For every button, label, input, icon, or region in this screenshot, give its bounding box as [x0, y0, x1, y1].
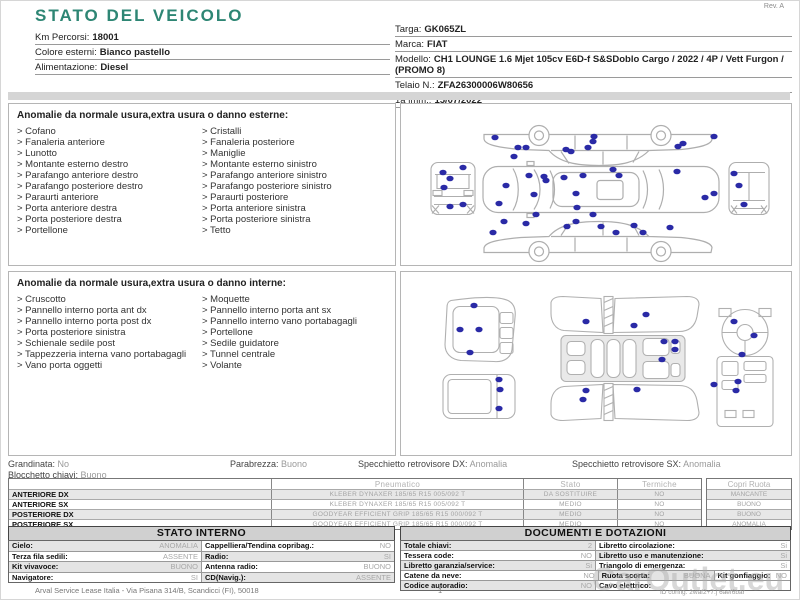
anomalies-internal-list: > Cruscotto> Pannello interno porta ant … [9, 294, 395, 371]
tyre-row: ANTERIORE DXKLEBER DYNAXER 185/65 R15 00… [9, 489, 701, 499]
table-body: Cielo:ANOMALIACappelliera/Tendina coprib… [8, 540, 395, 583]
vehicle-info-left: Km Percorsi:18001Colore esterni:Bianco p… [35, 30, 390, 75]
damage-dot [500, 219, 507, 225]
status-value: Buono [281, 459, 307, 469]
table-row: Tessera code:NOLibretto uso e manutenzio… [401, 550, 790, 560]
damage-dot [466, 350, 473, 356]
damage-dot [475, 327, 482, 333]
cell-label: Libretto uso e manutenzione: [599, 551, 704, 560]
kv-cell: Tessera code:NO [401, 551, 595, 560]
tyre-header-row: PneumaticoStatoTermiche [9, 479, 701, 489]
damage-dot [673, 169, 680, 175]
exterior-diagram-box [400, 103, 792, 266]
damage-dot [502, 183, 509, 189]
car-interior-diagram [401, 272, 791, 455]
kv-cell: Terza fila sedili:ASSENTE [9, 552, 201, 562]
cell-label: Radio: [205, 552, 228, 561]
table-row: Terza fila sedili:ASSENTERadio:SI [9, 551, 394, 562]
kv-cell: CD(Navig.):ASSENTE [201, 573, 394, 583]
tyre-thermal-cell: NO [617, 500, 701, 509]
kv-cell: Kit vivavoce:BUONO [9, 562, 201, 572]
anomaly-item: > Porta posteriore destra [17, 214, 202, 225]
anomaly-item: > Parafango anteriore sinistro [202, 170, 387, 181]
damage-dot [630, 223, 637, 229]
anomalies-external-title: Anomalie da normale usura,extra usura o … [17, 110, 387, 121]
anomaly-item: > Tunnel centrale [202, 349, 387, 360]
tyre-position-cell: ANTERIORE SX [9, 500, 271, 509]
field-label: Marca: [395, 39, 424, 50]
anomaly-item: > Porta posteriore sinistra [202, 214, 387, 225]
cell-value: Si [780, 541, 787, 550]
stato-interno-table: STATO INTERNOCielo:ANOMALIACappelliera/T… [8, 526, 395, 583]
damage-dot [582, 319, 589, 325]
damage-dot [491, 135, 498, 141]
anomaly-item: > Cristalli [202, 126, 387, 137]
cell-label: Tessera code: [404, 551, 454, 560]
damage-dot [495, 406, 502, 412]
cell-label: Cappelliera/Tendina copribag.: [205, 541, 314, 550]
page-number: 1 [438, 586, 442, 595]
cell-label: Libretto garanzia/service: [404, 561, 495, 570]
status-item: Grandinata: No [8, 459, 69, 469]
damage-dot [660, 339, 667, 345]
damage-dot [701, 195, 708, 201]
cell-value: BUONO [170, 562, 198, 571]
damage-dot [642, 312, 649, 318]
cabin-view-icon [551, 297, 699, 421]
field-label: Alimentazione: [35, 62, 97, 73]
damage-dot [572, 191, 579, 197]
status-item: Specchietto retrovisore SX: Anomalia [572, 459, 721, 469]
footer-text: Arval Service Lease Italia - Via Pisana … [35, 586, 259, 595]
damage-dot [440, 185, 447, 191]
info-row: Colore esterni:Bianco pastello [35, 45, 390, 60]
table-row: Totale chiavi:2Libretto circolazione:Si [401, 541, 790, 550]
anomaly-item: > Paraurti posteriore [202, 192, 387, 203]
field-value: GK065ZL [424, 24, 466, 35]
kv-cell: Cappelliera/Tendina copribag.:NO [201, 541, 394, 551]
damage-dot [439, 170, 446, 176]
tyre-table: PneumaticoStatoTermicheANTERIORE DXKLEBE… [8, 478, 702, 530]
tyre-state-cell: DA SOSTITUIRE [523, 490, 617, 499]
cell-value: SI [191, 573, 198, 582]
table-row: Cielo:ANOMALIACappelliera/Tendina coprib… [9, 541, 394, 551]
page-title: STATO DEL VEICOLO [35, 6, 243, 26]
field-value: Bianco pastello [100, 47, 170, 58]
cell-label: Totale chiavi: [404, 541, 451, 550]
cell-value: ANOMALIA [159, 541, 198, 550]
anomaly-item: > Schienale sedile post [17, 338, 202, 349]
anomaly-item: > Maniglie [202, 148, 387, 159]
field-label: Colore esterni: [35, 47, 97, 58]
anomaly-item: > Moquette [202, 294, 387, 305]
anomaly-item: > Tappezzeria interna vano portabagagli [17, 349, 202, 360]
anomaly-item: > Montante esterno sinistro [202, 159, 387, 170]
table-row: Navigatore:SICD(Navig.):ASSENTE [9, 572, 394, 583]
info-row: Alimentazione:Diesel [35, 60, 390, 75]
tyre-row: ANTERIORE SXKLEBER DYNAXER 185/65 R15 00… [9, 499, 701, 509]
anomalies-external-col-right: > Cristalli> Fanaleria posteriore> Manig… [202, 126, 387, 236]
cell-value: ASSENTE [163, 552, 198, 561]
tyre-corner-cell [9, 479, 271, 489]
plan-view-icon [483, 162, 719, 218]
status-label: Grandinata: [8, 459, 58, 469]
cell-label: Kit vivavoce: [12, 562, 58, 571]
anomaly-item: > Montante esterno destro [17, 159, 202, 170]
damage-dot [671, 347, 678, 353]
anomaly-item: > Volante [202, 360, 387, 371]
anomalies-external-box: Anomalie da normale usura,extra usura o … [8, 103, 396, 266]
damage-dot [573, 205, 580, 211]
kv-cell: Libretto uso e manutenzione:Si [595, 551, 790, 560]
status-value: Anomalia [683, 459, 721, 469]
anomalies-internal-box: Anomalie da normale usura,extra usura o … [8, 271, 396, 456]
cell-value: NO [380, 541, 391, 550]
damage-dot [730, 319, 737, 325]
damage-dot [734, 379, 741, 385]
kv-cell: Totale chiavi:2 [401, 541, 595, 550]
tyre-thermal-cell: NO [617, 490, 701, 499]
kv-cell: Navigatore:SI [9, 573, 201, 583]
damage-dot [560, 175, 567, 181]
damage-dot [710, 134, 717, 140]
section-divider [8, 92, 790, 100]
copri-value-cell: MANCANTE [707, 489, 791, 499]
id-code: ID config. 2waf2+7.j 6aef6bar [660, 589, 745, 596]
tyre-name-cell: KLEBER DYNAXER 185/65 R15 005/092 T [271, 490, 523, 499]
cell-label: CD(Navig.): [205, 573, 246, 582]
kv-cell: Codice autoradio:NO [401, 581, 595, 590]
damage-dot [567, 149, 574, 155]
cell-label: Libretto circolazione: [599, 541, 675, 550]
damage-dot [589, 139, 596, 145]
copri-header-cell: Copri Ruota [707, 479, 791, 489]
damage-dot [710, 191, 717, 197]
info-row: Marca:FIAT [395, 37, 792, 52]
damage-dot [510, 154, 517, 160]
damage-dot [522, 221, 529, 227]
cell-label: Antenna radio: [205, 562, 258, 571]
damage-dot [579, 397, 586, 403]
copri-value-cell: BUONO [707, 499, 791, 509]
field-label: Km Percorsi: [35, 32, 89, 43]
damage-dot [738, 352, 745, 358]
info-row: Km Percorsi:18001 [35, 30, 390, 45]
anomalies-external-col-left: > Cofano> Fanaleria anteriore> Lunotto> … [17, 126, 202, 236]
anomaly-item: > Vano porta oggetti [17, 360, 202, 371]
kv-cell: Catene da neve:NO [401, 571, 598, 580]
damage-dot [590, 134, 597, 140]
damage-dot [456, 327, 463, 333]
field-label: Targa: [395, 24, 421, 35]
damage-dot [522, 145, 529, 151]
damage-dot [679, 141, 686, 147]
field-label: Telaio N.: [395, 80, 435, 91]
anomaly-item: > Parafango posteriore sinistro [202, 181, 387, 192]
cell-value: Si [780, 551, 787, 560]
damage-dot [639, 230, 646, 236]
anomaly-item: > Parafango posteriore destro [17, 181, 202, 192]
tyre-header-cell: Stato [523, 479, 617, 489]
damage-dot [582, 388, 589, 394]
kv-cell: Libretto circolazione:Si [595, 541, 790, 550]
status-label: Specchietto retrovisore DX: [358, 459, 470, 469]
tyre-position-cell: POSTERIORE DX [9, 510, 271, 519]
damage-dot [572, 219, 579, 225]
cell-label: Codice autoradio: [404, 581, 468, 590]
damage-dot [470, 303, 477, 309]
kv-cell: Libretto garanzia/service:Si [401, 561, 595, 570]
damage-dot [750, 333, 757, 339]
cell-value: NO [581, 551, 592, 560]
tyre-state-cell: MEDIO [523, 500, 617, 509]
cell-value: NO [581, 581, 592, 590]
anomalies-external-list: > Cofano> Fanaleria anteriore> Lunotto> … [9, 126, 395, 236]
cell-label: Navigatore: [12, 573, 53, 582]
anomaly-item: > Tetto [202, 225, 387, 236]
revision-label: Rev. A [764, 3, 784, 10]
rear-view-icon [729, 163, 769, 215]
anomaly-item: > Sedile guidatore [202, 338, 387, 349]
damage-dot [530, 192, 537, 198]
anomalies-internal-col-left: > Cruscotto> Pannello interno porta ant … [17, 294, 202, 371]
info-row: Modello:CH1 LOUNGE 1.6 Mjet 105cv E6D-f … [395, 52, 792, 78]
damage-dot [446, 176, 453, 182]
anomaly-item: > Fanaleria posteriore [202, 137, 387, 148]
damage-dot [542, 178, 549, 184]
copri-value-cell: BUONO [707, 509, 791, 519]
damage-dot [732, 388, 739, 394]
field-value: CH1 LOUNGE 1.6 Mjet 105cv E6D-f S&SDoblo… [395, 54, 784, 76]
damage-dot [563, 224, 570, 230]
damage-dot [609, 167, 616, 173]
damage-dot [446, 204, 453, 210]
damage-dot [589, 212, 596, 218]
field-value: 18001 [92, 32, 118, 43]
anomaly-item: > Porta anteriore sinistra [202, 203, 387, 214]
damage-dot [666, 225, 673, 231]
tailgate-view-icon [443, 375, 515, 419]
anomaly-item: > Parafango anteriore destro [17, 170, 202, 181]
anomaly-item: > Fanaleria anteriore [17, 137, 202, 148]
damage-dot [735, 183, 742, 189]
tyre-position-cell: ANTERIORE DX [9, 490, 271, 499]
status-value: Anomalia [470, 459, 508, 469]
damage-dot [579, 173, 586, 179]
cell-value: SI [384, 552, 391, 561]
status-item: Parabrezza: Buono [230, 459, 307, 469]
anomaly-item: > Lunotto [17, 148, 202, 159]
field-value: Diesel [100, 62, 128, 73]
anomaly-item: > Pannello interno porta post dx [17, 316, 202, 327]
cell-value: Si [585, 561, 592, 570]
damage-dot [658, 357, 665, 363]
field-value: ZFA26300006W80656 [438, 80, 534, 91]
damage-dot [489, 230, 496, 236]
damage-dot [740, 202, 747, 208]
damage-dot [525, 173, 532, 179]
cell-value: BUONO [363, 562, 391, 571]
anomalies-internal-col-right: > Moquette> Pannello interno porta ant s… [202, 294, 387, 371]
cell-label: Cielo: [12, 541, 33, 550]
status-item: Specchietto retrovisore DX: Anomalia [358, 459, 507, 469]
damage-dot [633, 387, 640, 393]
car-exterior-diagram [401, 104, 791, 265]
damage-dot [630, 323, 637, 329]
anomaly-item: > Pannello interno porta ant sx [202, 305, 387, 316]
cell-value: 2 [588, 541, 592, 550]
damage-dot [496, 387, 503, 393]
field-value: FIAT [427, 39, 447, 50]
info-row: Targa:GK065ZL [395, 22, 792, 37]
anomaly-item: > Pannello interno porta ant dx [17, 305, 202, 316]
field-label: Modello: [395, 54, 431, 65]
anomalies-internal-title: Anomalie da normale usura,extra usura o … [17, 278, 387, 289]
damage-dot [514, 145, 521, 151]
anomaly-item: > Paraurti anteriore [17, 192, 202, 203]
status-label: Parabrezza: [230, 459, 281, 469]
damage-dot [710, 382, 717, 388]
damage-dot [495, 201, 502, 207]
info-row: Telaio N.:ZFA26300006W80656 [395, 78, 792, 93]
cell-label: Terza fila sedili: [12, 552, 68, 561]
tyre-thermal-cell: NO [617, 510, 701, 519]
status-value: No [58, 459, 70, 469]
anomaly-item: > Porta anteriore destra [17, 203, 202, 214]
anomaly-item: > Pannello interno vano portabagagli [202, 316, 387, 327]
tyre-name-cell: KLEBER DYNAXER 185/65 R15 005/092 T [271, 500, 523, 509]
kv-cell: Antenna radio:BUONO [201, 562, 394, 572]
damage-dot [597, 224, 604, 230]
cell-label: Catene da neve: [404, 571, 462, 580]
interior-diagram-box [400, 271, 792, 456]
table-header: DOCUMENTI E DOTAZIONI [400, 526, 791, 540]
damage-dot [615, 173, 622, 179]
anomaly-item: > Cruscotto [17, 294, 202, 305]
tyre-state-cell: MEDIO [523, 510, 617, 519]
copri-ruota-table: Copri RuotaMANCANTEBUONOBUONOANOMALIA [706, 478, 792, 530]
tyre-header-cell: Pneumatico [271, 479, 523, 489]
table-row: Kit vivavoce:BUONOAntenna radio:BUONO [9, 561, 394, 572]
tyre-row: POSTERIORE DXGOODYEAR EFFICIENT GRIP 185… [9, 509, 701, 519]
cell-value: ASSENTE [356, 573, 391, 582]
damage-dot [612, 230, 619, 236]
damage-dot [532, 212, 539, 218]
anomaly-item: > Porta posteriore sinistra [17, 327, 202, 338]
anomaly-item: > Cofano [17, 126, 202, 137]
table-header: STATO INTERNO [8, 526, 395, 540]
status-label: Specchietto retrovisore SX: [572, 459, 683, 469]
dashboard-view-icon [717, 309, 773, 427]
kv-cell: Radio:SI [201, 552, 394, 562]
damage-dot [671, 339, 678, 345]
damage-dot [459, 165, 466, 171]
anomaly-item: > Portellone [17, 225, 202, 236]
damage-dot [730, 171, 737, 177]
tyre-name-cell: GOODYEAR EFFICIENT GRIP 185/65 R15 000/0… [271, 510, 523, 519]
damage-dot [459, 202, 466, 208]
anomaly-item: > Portellone [202, 327, 387, 338]
damage-dot [495, 377, 502, 383]
kv-cell: Cielo:ANOMALIA [9, 541, 201, 551]
tyre-header-cell: Termiche [617, 479, 701, 489]
damage-dot [584, 145, 591, 151]
